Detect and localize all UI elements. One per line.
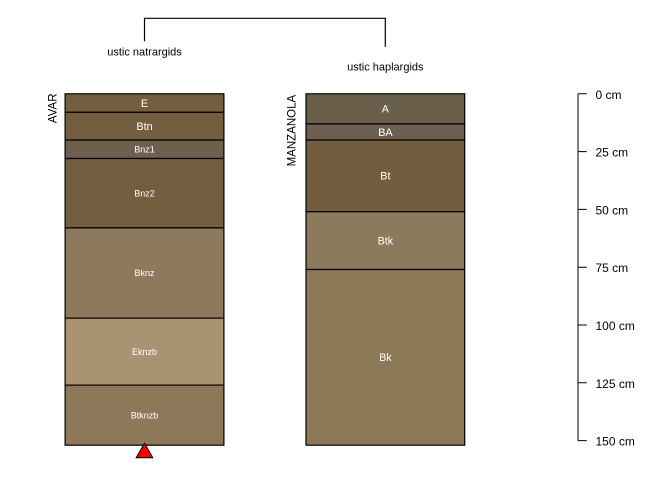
svg-text:Bnz2: Bnz2 bbox=[134, 188, 155, 198]
svg-text:Btk: Btk bbox=[378, 235, 394, 247]
svg-text:50 cm: 50 cm bbox=[596, 203, 629, 217]
svg-text:Bt: Bt bbox=[380, 171, 390, 183]
svg-text:E: E bbox=[141, 98, 148, 110]
svg-text:ustic haplargids: ustic haplargids bbox=[347, 61, 424, 73]
svg-text:Btknzb: Btknzb bbox=[131, 410, 159, 420]
svg-text:MANZANOLA: MANZANOLA bbox=[287, 94, 299, 166]
svg-text:Btn: Btn bbox=[136, 121, 152, 133]
svg-text:125 cm: 125 cm bbox=[596, 377, 635, 391]
svg-text:BA: BA bbox=[378, 127, 393, 139]
svg-text:A: A bbox=[382, 104, 390, 116]
svg-text:75 cm: 75 cm bbox=[596, 261, 629, 275]
svg-text:ustic natrargids: ustic natrargids bbox=[107, 47, 182, 59]
svg-text:150 cm: 150 cm bbox=[596, 435, 635, 449]
svg-text:0 cm: 0 cm bbox=[596, 88, 622, 102]
svg-text:25 cm: 25 cm bbox=[596, 146, 629, 160]
svg-text:100 cm: 100 cm bbox=[596, 319, 635, 333]
svg-text:Bknz: Bknz bbox=[134, 268, 155, 278]
svg-text:Bk: Bk bbox=[379, 352, 392, 364]
svg-text:Bnz1: Bnz1 bbox=[134, 144, 155, 154]
svg-text:AVAR: AVAR bbox=[48, 94, 60, 124]
svg-text:Eknzb: Eknzb bbox=[132, 347, 157, 357]
